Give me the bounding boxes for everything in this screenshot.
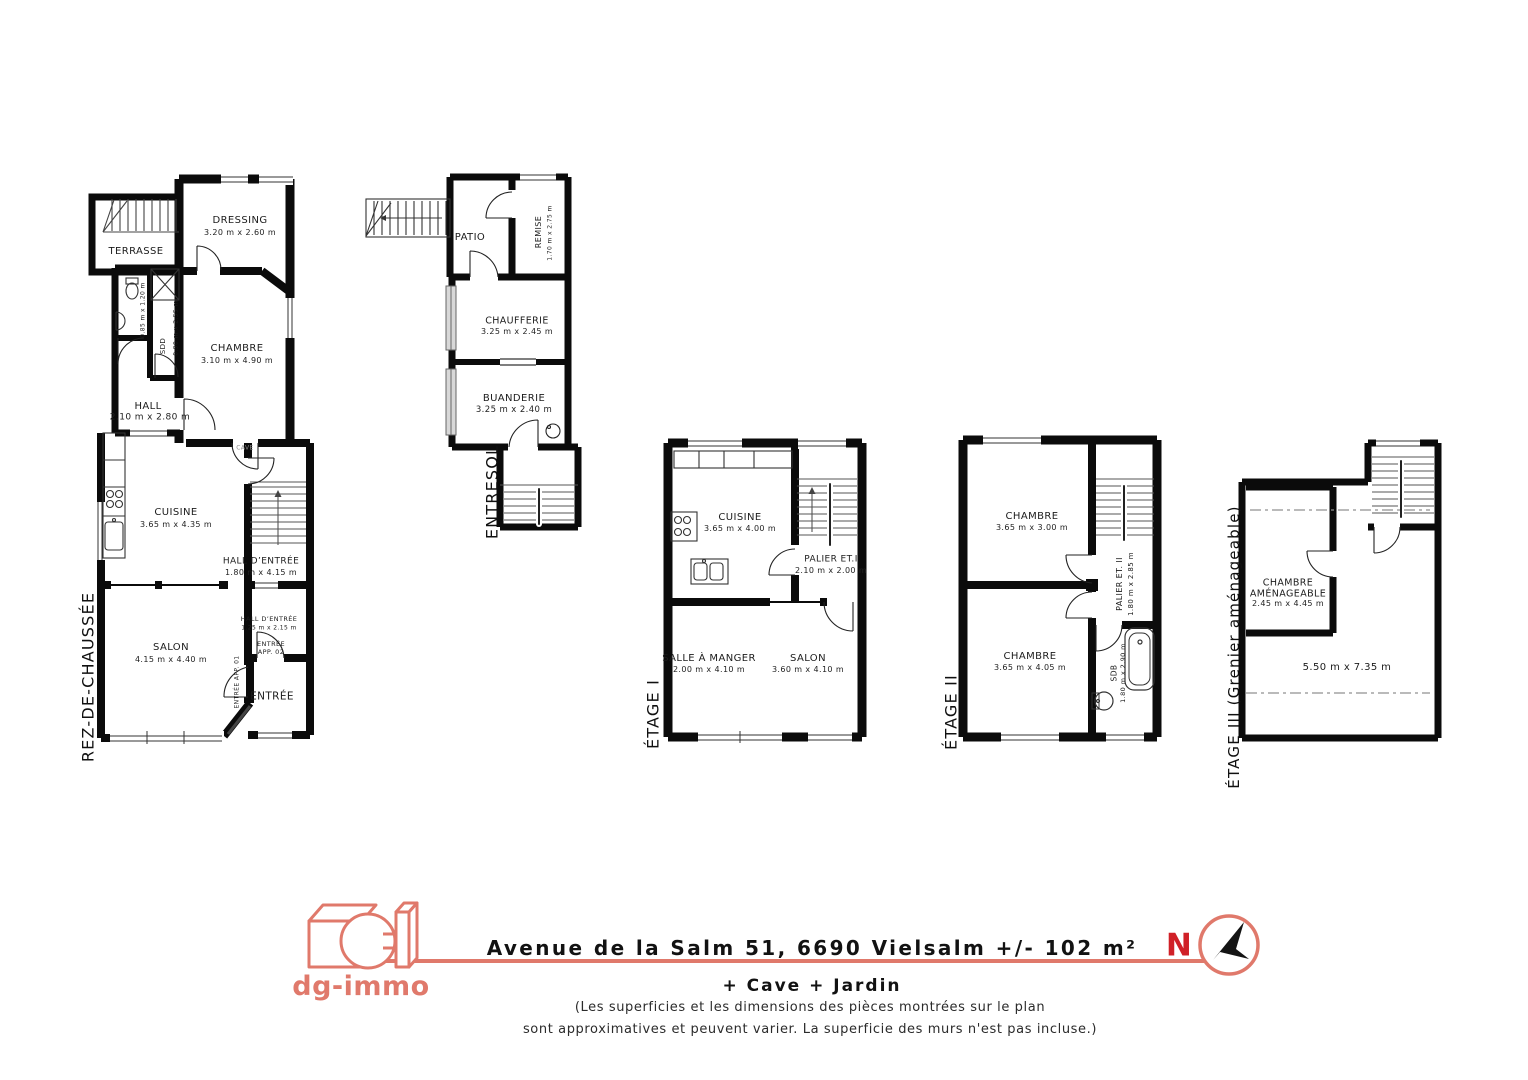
room-label-salle-a-manger: SALLE À MANGER xyxy=(662,653,756,665)
room-dims-hall-entree-2: 1.25 m x 2.15 m xyxy=(241,624,297,631)
room-label-cuisine-rdc: CUISINE xyxy=(154,507,197,519)
room-dims-hall: 2.10 m x 2.80 m xyxy=(110,413,190,424)
room-dims-sdb: 1.80 m x 2.90 m xyxy=(1120,643,1128,703)
room-label-entree: ENTRÉE xyxy=(250,691,294,704)
floor-label-entresol: ENTRESOL xyxy=(482,445,501,539)
stairs-terrasse xyxy=(103,199,179,232)
disclaimer-line-2: sont approximatives et peuvent varier. L… xyxy=(523,1022,1097,1038)
room-label-palier-et1: PALIER ET.I xyxy=(804,555,858,566)
room-label-palier-et2: PALIER ET. II xyxy=(1115,557,1125,611)
floor-label-etage1: ÉTAGE I xyxy=(643,679,662,749)
room-label-entree-app-02: ENTRÉE APP. 02 xyxy=(253,641,289,657)
room-label-dressing: DRESSING xyxy=(212,215,267,227)
room-label-chaufferie: CHAUFFERIE xyxy=(485,315,549,326)
room-label-chambre2-et2: CHAMBRE xyxy=(1004,651,1057,663)
north-arrow-icon xyxy=(1200,916,1258,974)
room-dims-dressing: 3.20 m x 2.60 m xyxy=(204,228,276,238)
room-dims-chambre-rdc: 3.10 m x 4.90 m xyxy=(201,356,273,366)
disclaimer-line-1: (Les superficies et les dimensions des p… xyxy=(575,1000,1045,1016)
address-title: Avenue de la Salm 51, 6690 Vielsalm +/- … xyxy=(487,936,1138,960)
room-label-salon-rdc: SALON xyxy=(153,642,189,654)
room-dims-hall-entree: 1.80 m x 4.15 m xyxy=(225,568,297,578)
room-dims-wc: 0.85 m x 1.20 m xyxy=(139,282,146,338)
room-label-cave-door: CAVE xyxy=(236,444,253,451)
room-label-remise: REMISE xyxy=(534,216,544,248)
floorplan-drawing xyxy=(0,0,1528,1080)
room-label-terrasse: TERRASSE xyxy=(109,246,164,258)
room-dims-chambre1-et2: 3.65 m x 3.00 m xyxy=(996,523,1068,533)
north-letter: N xyxy=(1166,927,1192,964)
floorplan-sheet: TERRASSE DRESSING 3.20 m x 2.60 m CHAMBR… xyxy=(0,0,1528,1080)
brand-wordmark: dg-immo xyxy=(292,971,429,1003)
extras-line: + Cave + Jardin xyxy=(722,976,901,996)
floorplan-etage1 xyxy=(668,437,862,743)
room-label-salon-et1: SALON xyxy=(790,653,826,665)
room-dims-salle-a-manger: 2.00 m x 4.10 m xyxy=(673,665,745,675)
room-label-buanderie: BUANDERIE xyxy=(483,393,545,405)
room-dims-buanderie: 3.25 m x 2.40 m xyxy=(476,405,552,415)
room-label-sdd: SDD xyxy=(159,338,167,354)
floor-label-etage2: ÉTAGE II xyxy=(941,674,960,750)
room-dims-grenier: 5.50 m x 7.35 m xyxy=(1303,662,1392,674)
room-label-cuisine-et1: CUISINE xyxy=(718,512,761,524)
room-label-sdb: SDB xyxy=(1110,665,1119,682)
floor-label-rdc: REZ-DE-CHAUSSÉE xyxy=(78,592,97,762)
room-label-chambre-amenageable: CHAMBRE AMÉNAGEABLE xyxy=(1242,578,1334,601)
floor-label-etage3: ÉTAGE III (Grenier aménageable) xyxy=(1225,505,1243,788)
room-label-hall: HALL xyxy=(134,401,161,413)
room-dims-sdd: 0.90 m x 2.55 m xyxy=(172,300,179,356)
room-dims-cuisine-rdc: 3.65 m x 4.35 m xyxy=(140,520,212,530)
room-label-hall-entree-2: HALL D’ENTRÉE xyxy=(241,616,298,624)
room-dims-chambre2-et2: 3.65 m x 4.05 m xyxy=(994,663,1066,673)
room-label-chambre-rdc: CHAMBRE xyxy=(211,343,264,355)
room-dims-remise: 1.70 m x 2.75 m xyxy=(546,205,553,261)
room-dims-cuisine-et1: 3.65 m x 4.00 m xyxy=(704,524,776,534)
room-dims-salon-et1: 3.60 m x 4.10 m xyxy=(772,665,844,675)
room-label-chambre1-et2: CHAMBRE xyxy=(1006,511,1059,523)
room-label-hall-entree: HALL D’ENTRÉE xyxy=(223,557,299,568)
room-dims-chambre-amenageable: 2.45 m x 4.45 m xyxy=(1252,599,1324,609)
room-label-patio: PATIO xyxy=(455,232,485,244)
stairs-exterior xyxy=(366,199,450,237)
room-dims-salon-rdc: 4.15 m x 4.40 m xyxy=(135,655,207,665)
room-dims-chaufferie: 3.25 m x 2.45 m xyxy=(481,327,553,337)
room-dims-palier-et2: 1.80 m x 2.85 m xyxy=(1127,552,1135,616)
dg-immo-logo-icon xyxy=(309,903,417,968)
room-label-entree-app-01: ENTRÉE APP. 01 xyxy=(233,655,240,708)
room-dims-palier-et1: 2.10 m x 2.00 m xyxy=(795,566,867,576)
